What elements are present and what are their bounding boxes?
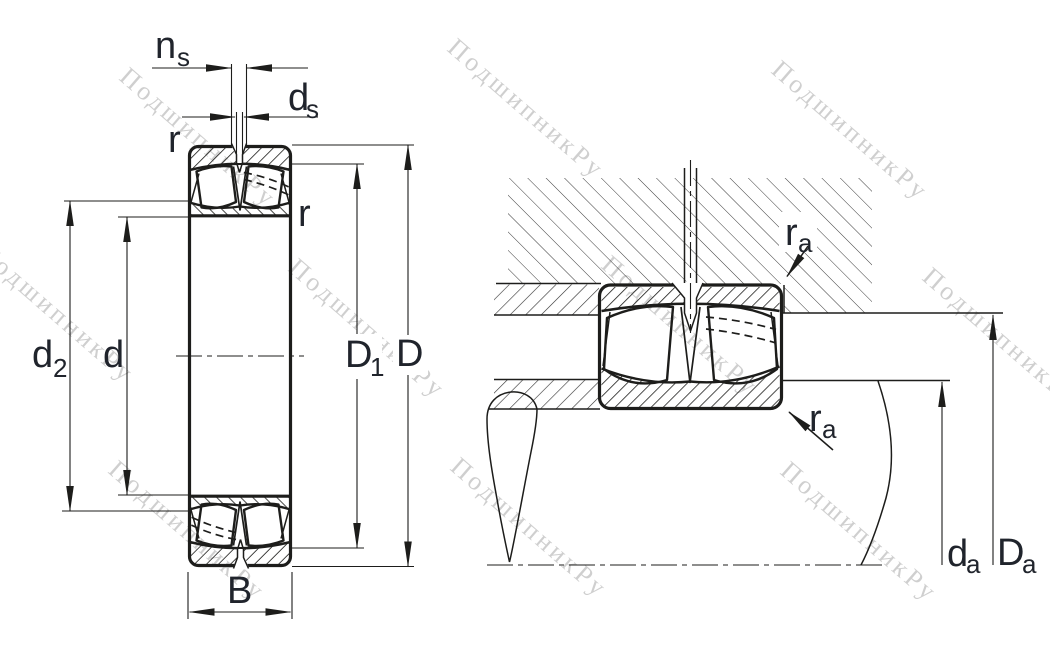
label-r-side: r (298, 193, 311, 235)
label-D: D (396, 333, 423, 375)
label-ra-sub: a (822, 414, 837, 444)
dimension-ds: d s (182, 77, 319, 124)
dimension-da: d a (942, 382, 981, 579)
label-da-sub: a (966, 549, 981, 579)
watermark: ПодшипникРу (917, 262, 1050, 414)
watermark: ПодшипникРу (775, 456, 944, 608)
label-ra: r (809, 398, 822, 440)
watermark: ПодшипникРу (283, 253, 452, 405)
watermark: ПодшипникРу (445, 452, 614, 604)
label-D1: D (345, 334, 372, 376)
bearing-drawing-canvas: ПодшипникРу ПодшипникРу ПодшипникРу Подш… (0, 0, 1050, 650)
label-Da-sub: a (1022, 549, 1037, 579)
label-ra-sub: a (798, 228, 813, 258)
groove-extension-lines (232, 64, 247, 146)
label-ns: n (155, 25, 176, 67)
technical-drawing-page: ПодшипникРу ПодшипникРу ПодшипникРу Подш… (0, 0, 1050, 650)
watermark: ПодшипникРу (442, 33, 611, 185)
label-d2-sub: 2 (53, 353, 67, 383)
label-ra: r (785, 212, 798, 254)
label-d2: d (32, 334, 53, 376)
label-ns-sub: s (177, 42, 190, 72)
label-Da: D (997, 532, 1024, 574)
label-D1-sub: 1 (370, 352, 384, 382)
label-B: B (227, 570, 252, 612)
inner-ring-section (190, 203, 291, 216)
dimension-ns: n s (152, 25, 308, 72)
mounting-cross-section: r a r a d a D a (487, 160, 1037, 579)
label-d: d (103, 334, 124, 376)
label-r-top: r (168, 119, 181, 161)
watermark-layer: ПодшипникРу ПодшипникРу ПодшипникРу Подш… (0, 33, 1050, 608)
dimension-ra-shaft: r a (789, 398, 837, 450)
outer-ring-abutment (494, 285, 599, 316)
label-da: d (947, 533, 968, 575)
dimension-d: d (103, 217, 188, 495)
label-ds-sub: s (306, 94, 319, 124)
dimension-B: B (188, 570, 292, 619)
